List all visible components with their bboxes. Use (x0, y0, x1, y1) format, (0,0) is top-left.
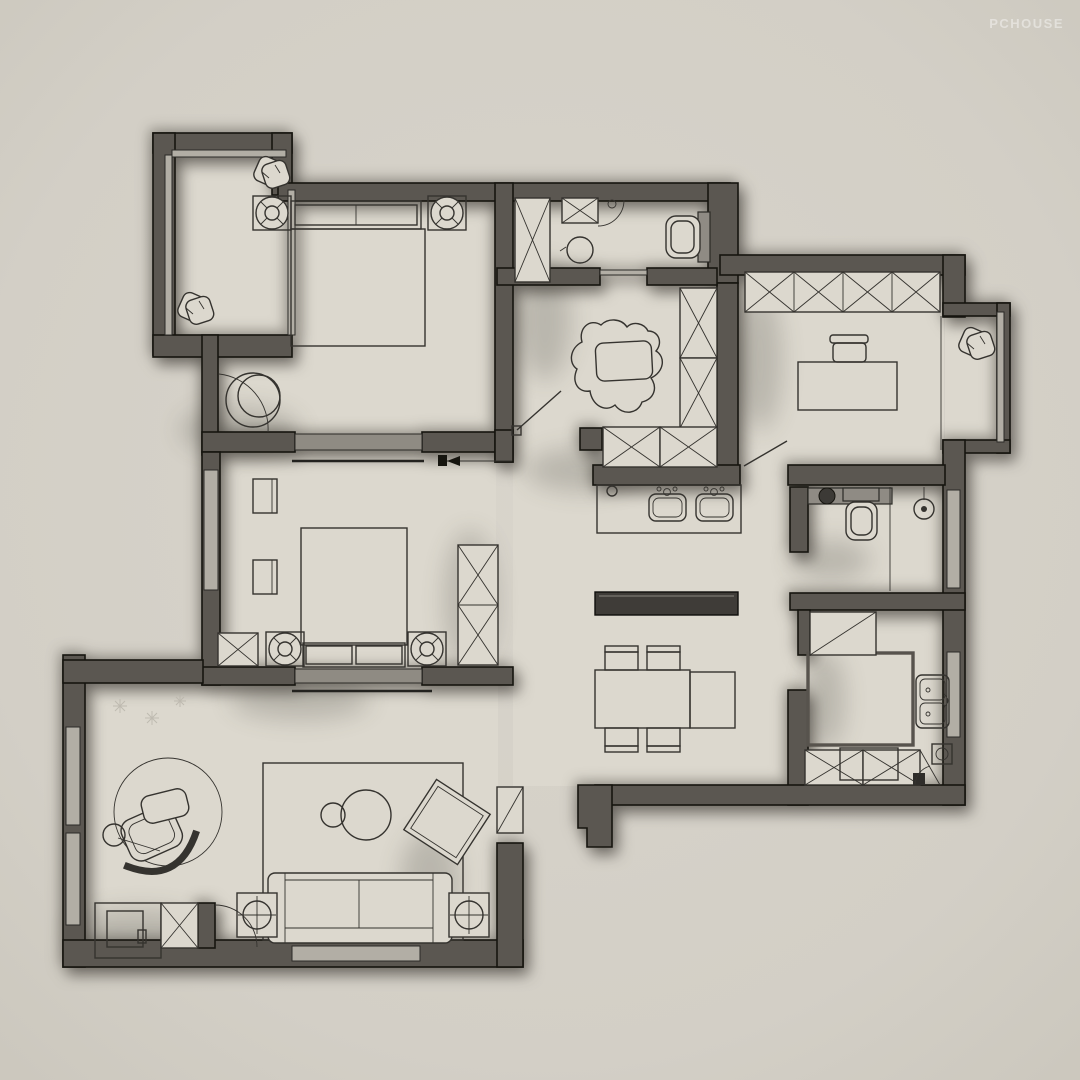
storage-cabinet-x (161, 903, 198, 948)
ceiling-lamp-icon (431, 197, 463, 229)
wardrobe-two-x (458, 545, 498, 665)
toilet (666, 212, 710, 262)
wall-cabinet-x (562, 198, 598, 223)
sideboard (595, 592, 738, 615)
corner-cabinet-x (218, 633, 258, 666)
ceiling-lamp-icon (269, 633, 301, 665)
floor-plan-image: PCHOUSE (0, 0, 1080, 1080)
sofa (268, 873, 452, 943)
wardrobe-four-x (745, 272, 940, 312)
fridge (810, 612, 876, 655)
floor-plan-svg (0, 0, 1080, 1080)
shoe-cabinet-row-x (603, 427, 717, 467)
watermark: PCHOUSE (989, 16, 1064, 31)
closet-two-x (680, 288, 717, 428)
round-basin (819, 488, 835, 504)
ceiling-lamp-icon (411, 633, 443, 665)
ceiling-lamp-icon (256, 197, 288, 229)
tall-cabinet-x (515, 198, 550, 282)
toilet (843, 488, 879, 540)
floor-unit (497, 787, 523, 833)
